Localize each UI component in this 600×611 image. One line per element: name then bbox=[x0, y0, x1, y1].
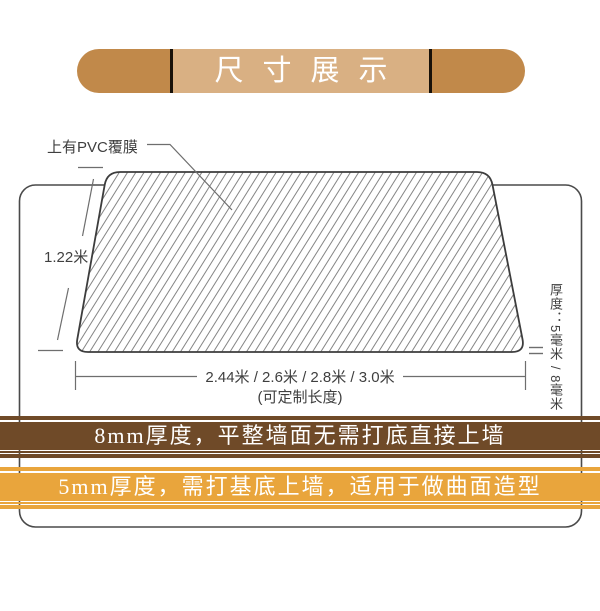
banner-5mm: 5mm厚度，需打基底上墙，适用于做曲面造型 bbox=[0, 467, 600, 509]
banner-5mm-band: 5mm厚度，需打基底上墙，适用于做曲面造型 bbox=[0, 473, 600, 501]
pvc-film-label: 上有PVC覆膜 bbox=[47, 136, 138, 157]
banner-8mm: 8mm厚度，平整墙面无需打底直接上墙 bbox=[0, 416, 600, 458]
length-dimension-label: 2.44米 / 2.6米 / 2.8米 / 3.0米 bbox=[100, 366, 500, 387]
banner-5mm-top-stripe bbox=[0, 467, 600, 471]
dimension-diagram bbox=[0, 0, 600, 611]
banner-8mm-thin-line bbox=[0, 451, 600, 453]
thickness-label: 厚度：5毫米 / 8毫米 bbox=[546, 283, 565, 433]
banner-5mm-bottom-stripe bbox=[0, 505, 600, 509]
banner-8mm-bottom-stripe bbox=[0, 454, 600, 458]
banner-8mm-text: 8mm厚度，平整墙面无需打底直接上墙 bbox=[94, 425, 505, 447]
banner-5mm-text: 5mm厚度，需打基底上墙，适用于做曲面造型 bbox=[58, 476, 541, 498]
length-custom-note: (可定制长度) bbox=[100, 386, 500, 407]
banner-8mm-band: 8mm厚度，平整墙面无需打底直接上墙 bbox=[0, 422, 600, 450]
thickness-marks bbox=[529, 348, 543, 354]
banner-8mm-top-stripe bbox=[0, 416, 600, 420]
banner-5mm-thin-line bbox=[0, 502, 600, 504]
panel-shape bbox=[77, 172, 523, 352]
height-dimension-label: 1.22米 bbox=[44, 246, 88, 267]
size-infographic: 尺寸展示 bbox=[0, 0, 600, 611]
